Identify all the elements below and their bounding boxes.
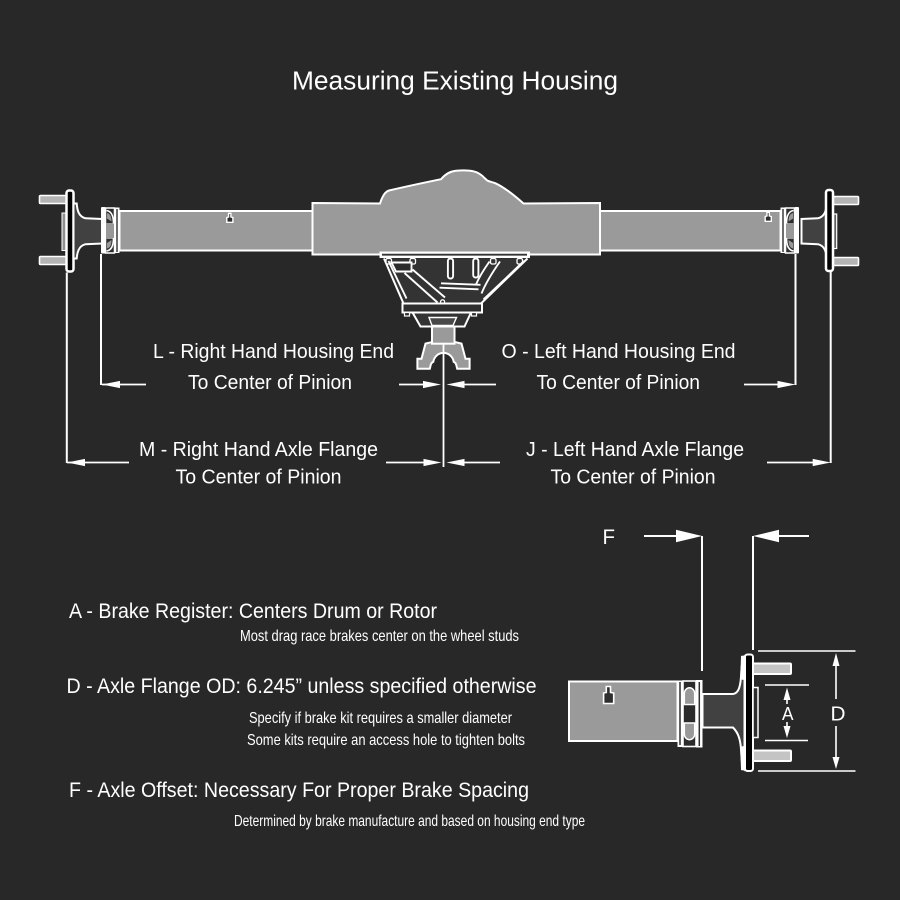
svg-text:F - Axle Offset: Necessary For: F - Axle Offset: Necessary For Proper Br… xyxy=(69,779,529,802)
svg-text:To Center of Pinion: To Center of Pinion xyxy=(551,467,716,489)
svg-text:Measuring Existing Housing: Measuring Existing Housing xyxy=(292,68,618,96)
svg-text:A: A xyxy=(782,704,794,724)
svg-text:To Center of Pinion: To Center of Pinion xyxy=(176,467,342,489)
svg-text:Some kits require an access ho: Some kits require an access hole to tigh… xyxy=(247,732,525,749)
svg-text:Determined by brake manufactur: Determined by brake manufacture and base… xyxy=(234,813,585,830)
svg-text:M - Right Hand Axle Flange: M - Right Hand Axle Flange xyxy=(139,439,378,461)
svg-text:A - Brake Register: Centers Dr: A - Brake Register: Centers Drum or Roto… xyxy=(69,600,437,623)
svg-text:Most drag race brakes center o: Most drag race brakes center on the whee… xyxy=(240,628,519,645)
svg-text:F: F xyxy=(603,526,616,549)
svg-text:To Center of Pinion: To Center of Pinion xyxy=(537,372,701,394)
svg-text:L - Right Hand Housing End: L - Right Hand Housing End xyxy=(153,341,394,363)
svg-text:J - Left Hand Axle Flange: J - Left Hand Axle Flange xyxy=(526,439,744,461)
svg-text:D: D xyxy=(831,703,846,726)
svg-text:D - Axle Flange OD: 6.245” unl: D - Axle Flange OD: 6.245” unless specif… xyxy=(67,675,537,698)
svg-text:Specify if brake kit requires: Specify if brake kit requires a smaller … xyxy=(249,710,513,727)
svg-text:To Center of Pinion: To Center of Pinion xyxy=(188,372,352,394)
svg-text:O - Left Hand Housing End: O - Left Hand Housing End xyxy=(502,341,736,363)
